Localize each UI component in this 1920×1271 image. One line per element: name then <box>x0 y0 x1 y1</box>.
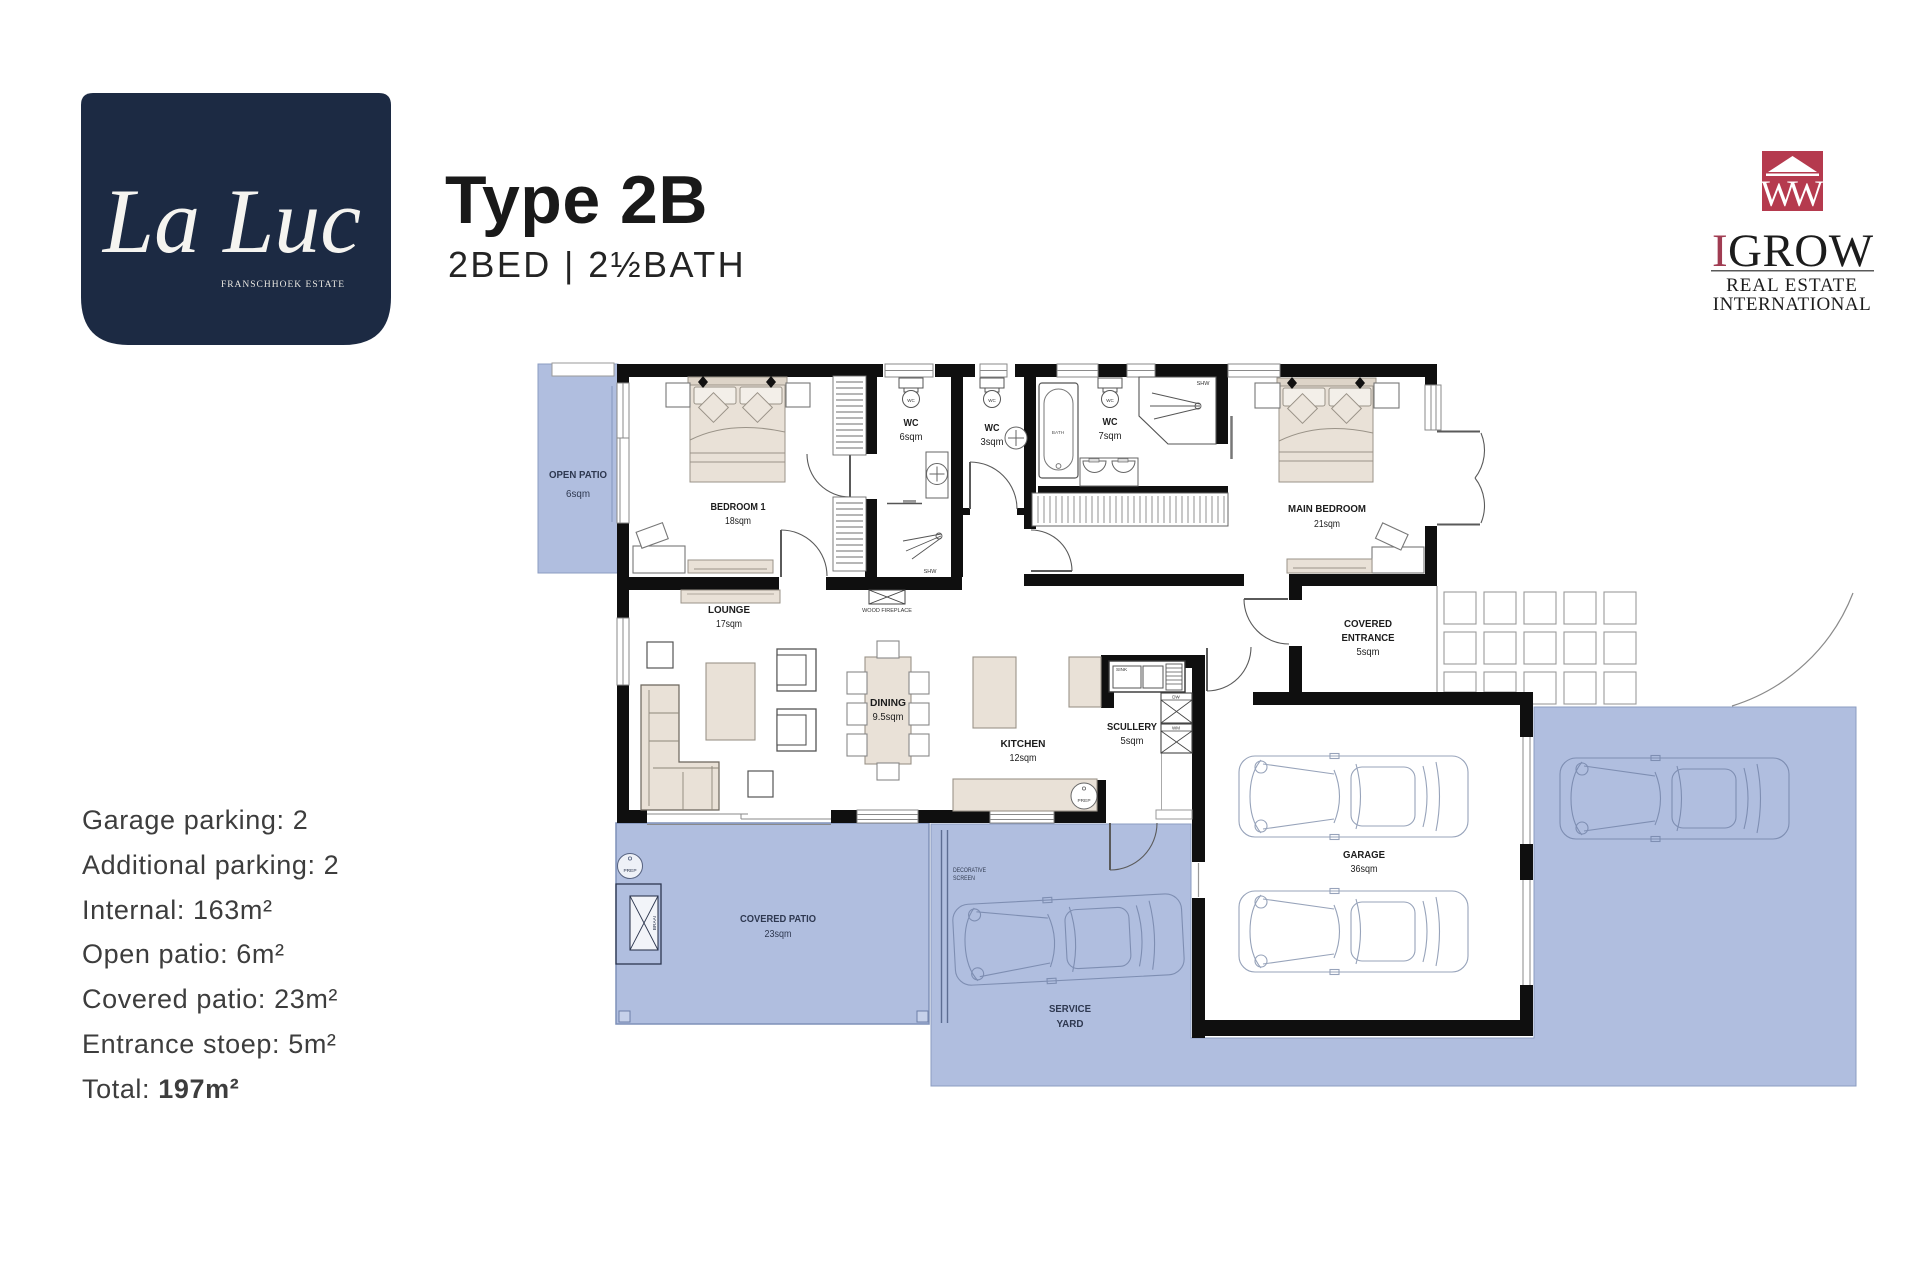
svg-text:5sqm: 5sqm <box>1357 647 1380 658</box>
svg-text:WC: WC <box>904 417 919 429</box>
svg-text:PREP: PREP <box>623 868 636 874</box>
svg-text:LOUNGE: LOUNGE <box>708 604 750 616</box>
svg-text:SINK: SINK <box>1116 667 1128 673</box>
svg-text:7sqm: 7sqm <box>1099 431 1122 442</box>
svg-text:SHW: SHW <box>1197 381 1211 387</box>
svg-text:ENTRANCE: ENTRANCE <box>1342 632 1395 644</box>
svg-text:PREP: PREP <box>1077 798 1090 804</box>
svg-text:COVERED PATIO: COVERED PATIO <box>740 913 816 925</box>
svg-text:12sqm: 12sqm <box>1010 753 1037 764</box>
svg-text:BRAAI: BRAAI <box>652 916 658 930</box>
svg-text:WC: WC <box>988 398 996 403</box>
svg-text:YARD: YARD <box>1057 1018 1084 1030</box>
svg-text:SHW: SHW <box>924 569 938 575</box>
svg-text:BEDROOM 1: BEDROOM 1 <box>711 501 766 513</box>
svg-text:WC: WC <box>985 422 1000 434</box>
svg-text:SERVICE: SERVICE <box>1049 1003 1091 1015</box>
svg-text:18sqm: 18sqm <box>725 516 751 527</box>
svg-text:GARAGE: GARAGE <box>1343 849 1385 861</box>
svg-text:DW: DW <box>1172 695 1180 700</box>
svg-text:WC: WC <box>1103 416 1118 428</box>
svg-text:DECORATIVE: DECORATIVE <box>953 868 986 874</box>
svg-text:SCULLERY: SCULLERY <box>1107 721 1157 733</box>
svg-text:9.5sqm: 9.5sqm <box>873 712 904 723</box>
svg-text:3sqm: 3sqm <box>981 437 1004 448</box>
svg-text:KITCHEN: KITCHEN <box>1001 738 1046 750</box>
svg-text:WC: WC <box>1106 398 1114 403</box>
svg-text:WC: WC <box>907 398 915 403</box>
svg-text:DINING: DINING <box>870 697 906 709</box>
svg-text:6sqm: 6sqm <box>566 489 590 500</box>
svg-text:17sqm: 17sqm <box>716 619 742 630</box>
svg-text:5sqm: 5sqm <box>1121 736 1144 747</box>
svg-text:21sqm: 21sqm <box>1314 519 1340 530</box>
svg-text:COVERED: COVERED <box>1344 618 1392 630</box>
svg-text:6sqm: 6sqm <box>900 432 923 443</box>
svg-text:SCREEN: SCREEN <box>953 876 975 882</box>
svg-text:OPEN PATIO: OPEN PATIO <box>549 469 607 481</box>
svg-text:WOOD FIREPLACE: WOOD FIREPLACE <box>862 608 912 614</box>
svg-text:23sqm: 23sqm <box>765 929 792 940</box>
svg-text:WM: WM <box>1172 726 1180 731</box>
svg-text:BATH: BATH <box>1052 430 1065 436</box>
svg-text:MAIN BEDROOM: MAIN BEDROOM <box>1288 503 1366 515</box>
svg-text:36sqm: 36sqm <box>1351 864 1378 875</box>
